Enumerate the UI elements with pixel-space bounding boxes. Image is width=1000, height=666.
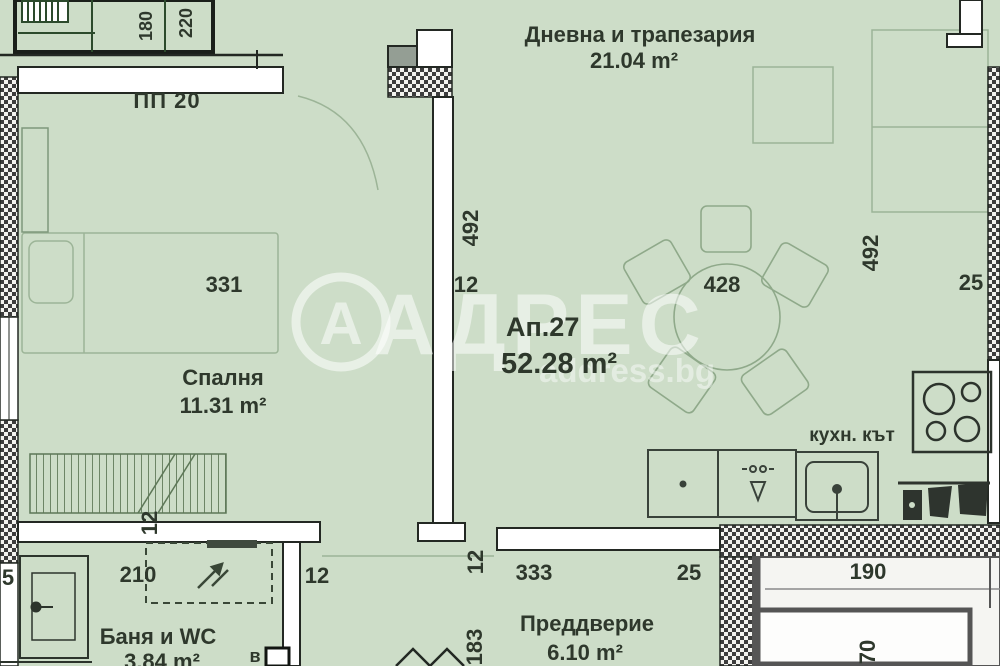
wall-left-upper <box>0 77 18 317</box>
watermark-logo-letter: А <box>319 290 362 357</box>
apartment-number: Ап.27 <box>506 312 579 342</box>
shower-knob <box>31 602 41 612</box>
room-area-living: 21.04 m² <box>590 48 678 73</box>
wall-central-tcap <box>418 523 465 541</box>
dim-492-left: 492 <box>458 210 483 247</box>
dim-25-right: 25 <box>959 270 983 295</box>
dim-70: 70 <box>855 640 880 664</box>
label-pp20: ПП 20 <box>133 88 200 113</box>
dim-180: 180 <box>136 11 156 41</box>
room-area-hallway: 6.10 m² <box>547 640 623 665</box>
dim-428: 428 <box>704 272 741 297</box>
dim-12-wall-left: 12 <box>137 511 162 535</box>
kitchen-cabinet-knob <box>681 482 686 487</box>
dim-v: в <box>249 646 260 666</box>
room-label-hallway: Преддверие <box>520 611 654 636</box>
dim-333: 333 <box>516 560 553 585</box>
wall-bottom-right-column <box>720 557 753 666</box>
floorplan: А АДРЕС address.bg Дневна и трапезария 2… <box>0 0 1000 666</box>
dim-12-bedroom: 12 <box>305 563 329 588</box>
neighbour-radiator <box>22 1 68 22</box>
wall-topright-h <box>947 34 982 47</box>
wall-topright-v <box>960 0 982 36</box>
wall-bottom-right-band <box>720 525 1000 557</box>
dim-210: 210 <box>120 562 157 587</box>
wall-right <box>988 67 1000 360</box>
dim-183: 183 <box>462 629 487 666</box>
apartment-area: 52.28 m² <box>501 348 617 380</box>
dim-25-hall: 25 <box>677 560 701 585</box>
wall-pier-hatch <box>388 67 452 97</box>
wall-left-lower <box>0 420 18 563</box>
dim-492-right: 492 <box>858 235 883 272</box>
dim-12-hall: 12 <box>463 550 488 574</box>
wardrobe <box>30 454 226 513</box>
room-area-bathroom: 3.84 m² <box>124 649 200 666</box>
pier-white <box>417 30 452 67</box>
dim-220: 220 <box>176 8 196 38</box>
sink-faucet <box>833 485 841 493</box>
wall-kitchen-bottom <box>497 528 720 550</box>
dashed-zone-bar <box>207 540 257 548</box>
dim-190: 190 <box>850 559 887 584</box>
room-label-bedroom: Спалня <box>182 365 264 390</box>
room-area-bedroom: 11.31 m² <box>180 393 267 418</box>
room-label-living: Дневна и трапезария <box>525 22 756 47</box>
wall-bedroom-bottom <box>18 522 320 542</box>
room-label-bathroom: Баня и WC <box>100 624 217 649</box>
dim-331: 331 <box>206 272 243 297</box>
room-label-kitchen: кухн. кът <box>809 425 895 446</box>
dim-12-central: 12 <box>454 272 478 297</box>
floorplan-svg: А АДРЕС address.bg Дневна и трапезария 2… <box>0 0 1000 666</box>
door-pier <box>266 648 289 666</box>
dim-5: 5 <box>2 565 14 590</box>
